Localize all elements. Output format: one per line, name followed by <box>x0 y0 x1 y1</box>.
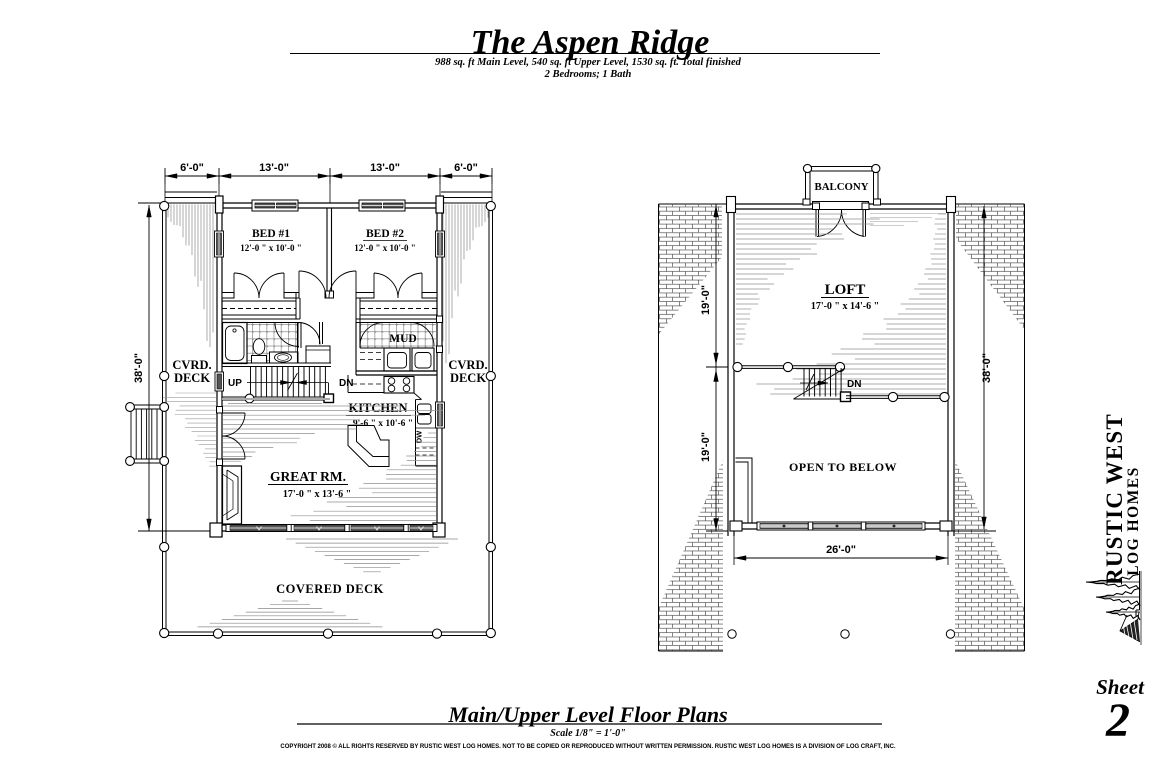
svg-text:BALCONY: BALCONY <box>815 181 869 193</box>
svg-text:BED #2: BED #2 <box>366 228 404 240</box>
svg-text:6'-0": 6'-0" <box>454 162 478 174</box>
svg-text:The Aspen Ridge: The Aspen Ridge <box>471 24 710 61</box>
svg-text:17'-0 " x 14'-6 ": 17'-0 " x 14'-6 " <box>811 301 879 312</box>
svg-text:RUSTIC WEST: RUSTIC WEST <box>1102 413 1127 585</box>
svg-text:38'-0": 38'-0" <box>981 353 993 383</box>
svg-text:GREAT RM.: GREAT RM. <box>270 469 346 484</box>
svg-text:COPYRIGHT 2008 © ALL RIGHTS RE: COPYRIGHT 2008 © ALL RIGHTS RESERVED BY … <box>280 743 896 750</box>
svg-text:13'-0": 13'-0" <box>370 162 400 174</box>
svg-text:DECK: DECK <box>450 371 486 385</box>
svg-text:COVERED DECK: COVERED DECK <box>276 582 384 596</box>
svg-text:LOFT: LOFT <box>825 282 866 298</box>
svg-text:KITCHEN: KITCHEN <box>348 401 407 415</box>
svg-text:CVRD.: CVRD. <box>172 358 211 372</box>
svg-text:19'-0": 19'-0" <box>700 432 712 462</box>
svg-text:38'-0": 38'-0" <box>133 353 145 383</box>
svg-text:DW: DW <box>415 430 424 443</box>
svg-text:19'-0": 19'-0" <box>700 285 712 315</box>
svg-text:UP: UP <box>228 378 242 389</box>
svg-text:17'-0 " x 13'-6 ": 17'-0 " x 13'-6 " <box>283 489 351 500</box>
svg-text:Scale 1/8" = 1'-0": Scale 1/8" = 1'-0" <box>550 728 625 739</box>
svg-text:MUD: MUD <box>389 333 416 345</box>
svg-text:6'-0": 6'-0" <box>180 162 204 174</box>
svg-text:DN: DN <box>339 378 353 389</box>
svg-text:12'-0 " x 10'-0 ": 12'-0 " x 10'-0 " <box>354 243 416 253</box>
svg-text:13'-0": 13'-0" <box>259 162 289 174</box>
svg-text:12'-0 " x 10'-0 ": 12'-0 " x 10'-0 " <box>240 243 302 253</box>
svg-text:2 Bedrooms; 1 Bath: 2 Bedrooms; 1 Bath <box>544 69 632 80</box>
svg-text:BED #1: BED #1 <box>252 228 290 240</box>
svg-text:CVRD.: CVRD. <box>448 358 487 372</box>
svg-text:DECK: DECK <box>174 371 210 385</box>
svg-text:DN: DN <box>847 379 861 390</box>
svg-text:Main/Upper Level Floor Plans: Main/Upper Level Floor Plans <box>447 702 727 727</box>
svg-text:2: 2 <box>1105 694 1130 747</box>
svg-text:OPEN TO BELOW: OPEN TO BELOW <box>789 460 897 474</box>
svg-text:LOG HOMES: LOG HOMES <box>1125 466 1142 576</box>
svg-text:26'-0": 26'-0" <box>826 544 856 556</box>
svg-text:988 sq. ft Main Level, 540 sq.: 988 sq. ft Main Level, 540 sq. ft Upper … <box>435 57 742 68</box>
svg-text:9'-6 " x 10'-6 ": 9'-6 " x 10'-6 " <box>353 419 413 429</box>
